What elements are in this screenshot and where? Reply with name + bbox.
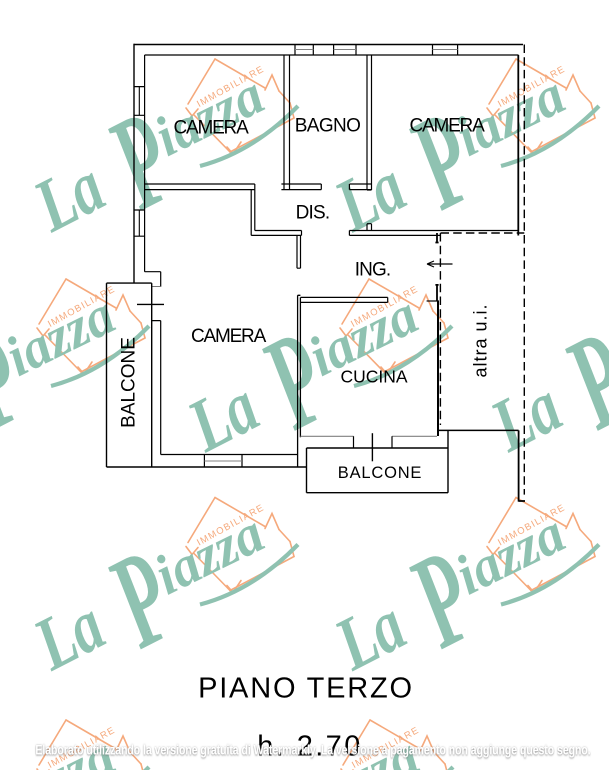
svg-text:BALCONE: BALCONE <box>119 337 140 428</box>
svg-text:CAMERA: CAMERA <box>173 118 249 139</box>
svg-text:BALCONE: BALCONE <box>338 464 422 482</box>
svg-text:altra u.i.: altra u.i. <box>471 303 491 377</box>
svg-text:Elaborato utilizzando la versi: Elaborato utilizzando la versione gratui… <box>35 742 590 758</box>
svg-text:CUCINA: CUCINA <box>340 367 407 387</box>
svg-text:PIANO TERZO: PIANO TERZO <box>198 673 414 705</box>
svg-text:ING.: ING. <box>355 260 390 281</box>
svg-text:BAGNO: BAGNO <box>295 116 361 137</box>
svg-text:DIS.: DIS. <box>296 203 330 224</box>
svg-text:CAMERA: CAMERA <box>409 116 485 137</box>
svg-text:CAMERA: CAMERA <box>191 326 267 347</box>
